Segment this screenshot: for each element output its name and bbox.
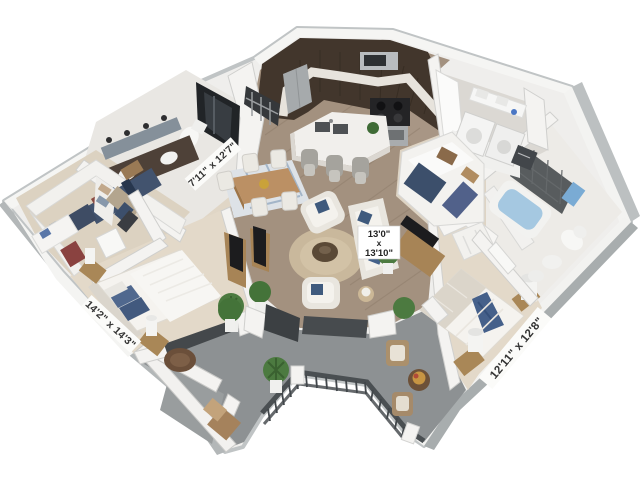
svg-text:x: x [377, 238, 382, 248]
svg-text:13'10": 13'10" [365, 248, 393, 259]
